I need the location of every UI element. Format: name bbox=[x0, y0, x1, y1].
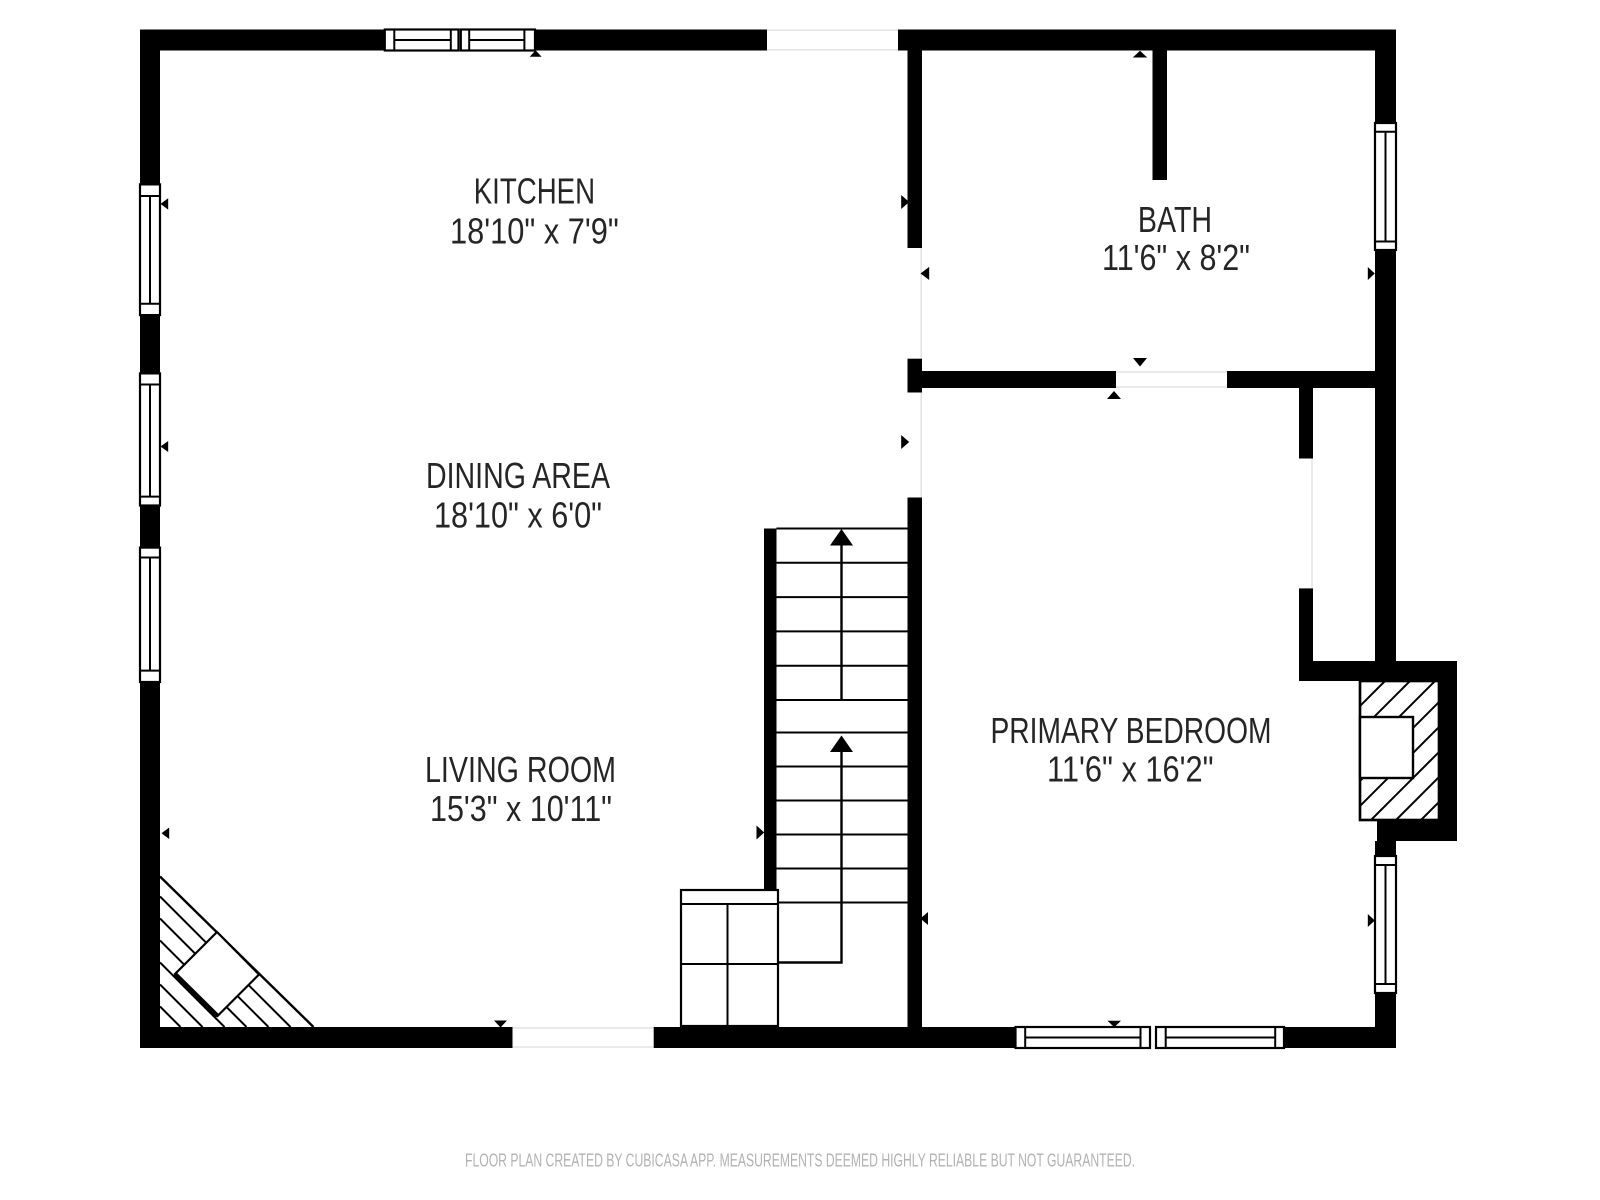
svg-text:FLOOR PLAN CREATED BY CUBICASA: FLOOR PLAN CREATED BY CUBICASA APP. MEAS… bbox=[465, 1150, 1135, 1171]
svg-text:DINING AREA: DINING AREA bbox=[426, 455, 610, 496]
svg-text:KITCHEN: KITCHEN bbox=[474, 171, 595, 212]
svg-text:PRIMARY BEDROOM: PRIMARY BEDROOM bbox=[991, 710, 1272, 751]
svg-text:BATH: BATH bbox=[1138, 199, 1212, 240]
svg-text:18'10" x 6'0": 18'10" x 6'0" bbox=[434, 495, 602, 536]
svg-text:18'10" x 7'9": 18'10" x 7'9" bbox=[450, 211, 619, 252]
svg-text:11'6" x 8'2": 11'6" x 8'2" bbox=[1102, 237, 1250, 278]
svg-text:15'3" x 10'11": 15'3" x 10'11" bbox=[430, 788, 612, 829]
svg-text:LIVING ROOM: LIVING ROOM bbox=[425, 749, 616, 790]
svg-text:11'6" x 16'2": 11'6" x 16'2" bbox=[1047, 748, 1214, 789]
